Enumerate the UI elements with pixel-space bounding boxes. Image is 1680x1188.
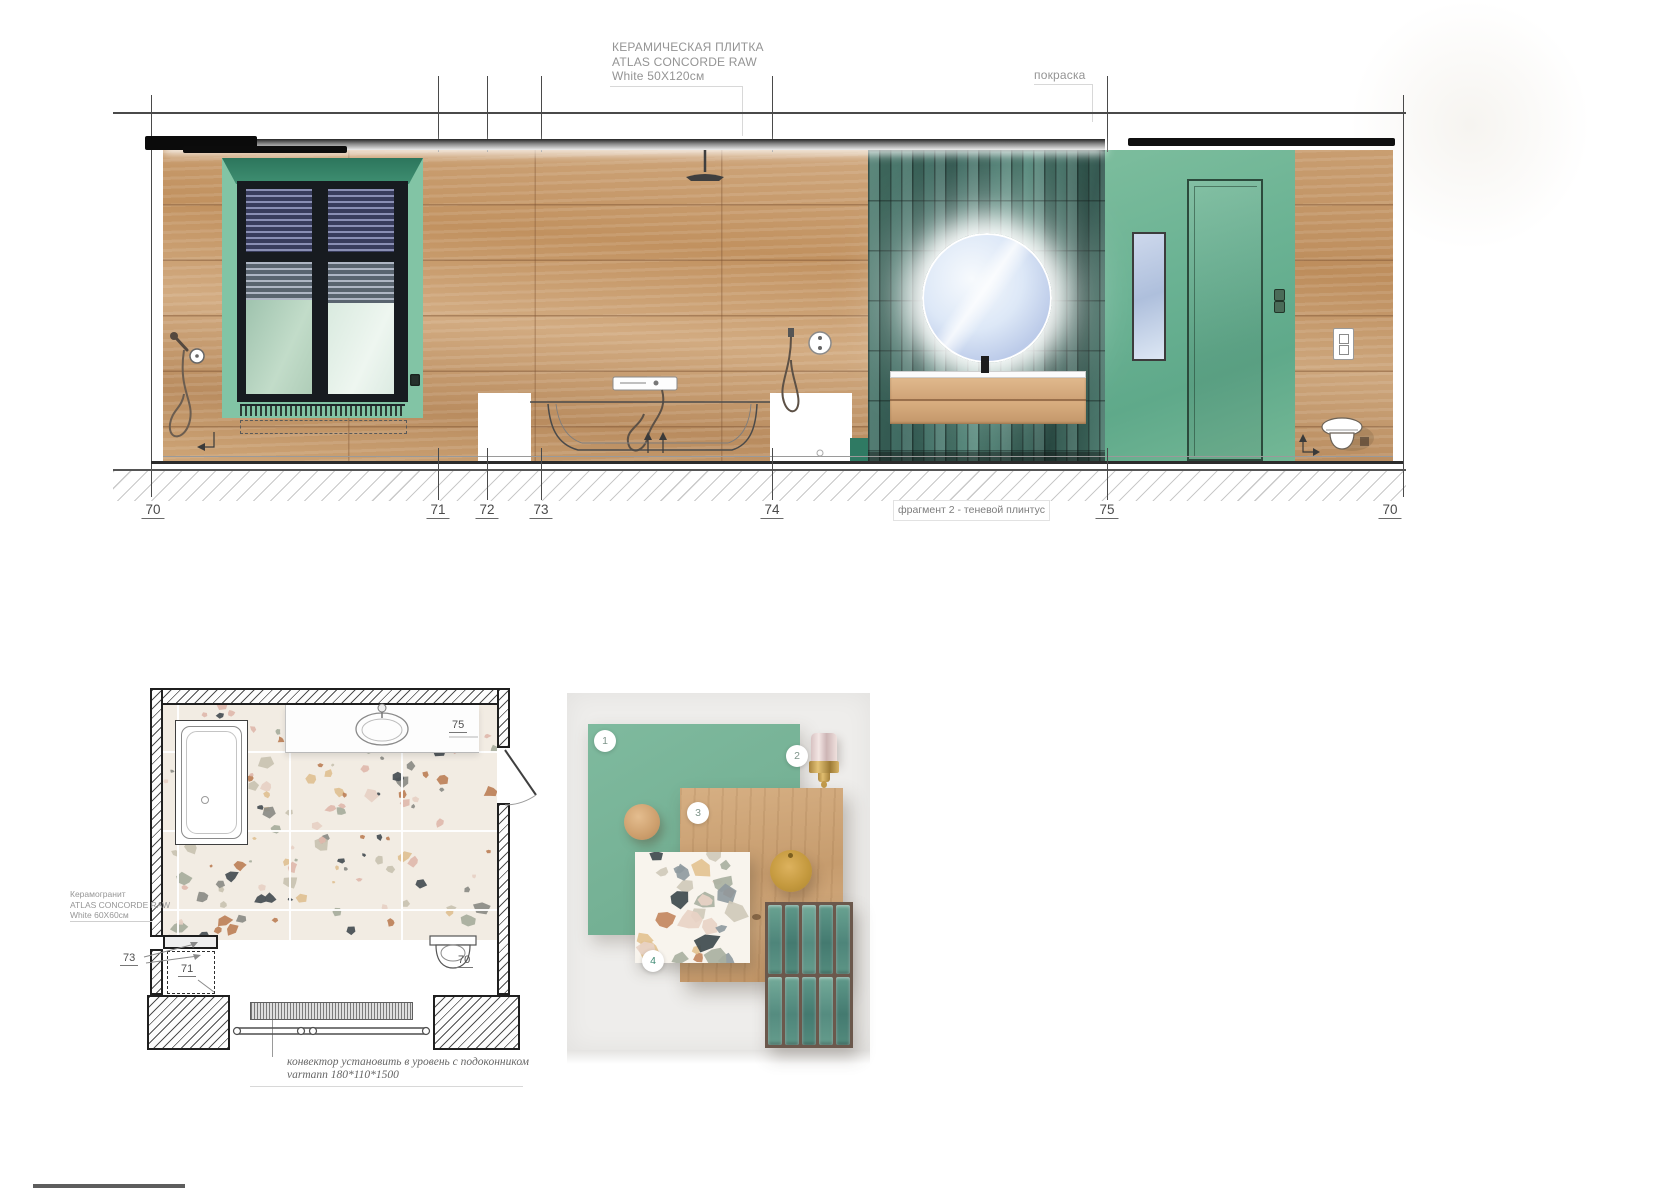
dim-tick [1107, 76, 1108, 152]
plan-wall-left-lower [150, 949, 163, 995]
convector-note-line: конвектор установить в уровень с подокон… [287, 1056, 529, 1069]
elevation-marker: 72 [475, 502, 498, 519]
floor-line-main [151, 461, 1403, 464]
light-switch-icon [1274, 301, 1285, 313]
flush-button [1339, 345, 1349, 355]
dim-tick-bottom [487, 448, 488, 500]
plan-marker-75: 75 [449, 719, 467, 733]
kitkat-tile [819, 905, 833, 974]
sample-badge-2: 2 [786, 745, 808, 767]
floor-finish-annotation: Керамогранит ATLAS CONCORDE RAW White 60… [70, 889, 170, 921]
socket-icon [410, 374, 420, 386]
door-panel-line [1194, 186, 1257, 457]
tile-annotation-leader [610, 86, 742, 87]
sample-brass-disc [770, 850, 812, 892]
moodboard-shadow-fade [567, 1050, 870, 1064]
dimension-line-top [113, 112, 1406, 114]
wood-wall-right [1295, 150, 1393, 463]
convector-note-underline [250, 1086, 523, 1087]
round-mirror [922, 233, 1052, 363]
dim-tick-bottom [438, 448, 439, 500]
plan-marker-70: 70 [455, 954, 473, 968]
window-blind-top-right [328, 189, 394, 252]
elevation-marker: 75 [1095, 502, 1118, 519]
window-glass-left [246, 300, 312, 394]
elevation-marker: 73 [529, 502, 552, 519]
vanity-niche-cutout [770, 393, 852, 463]
title-block-edge [33, 1184, 185, 1188]
plan-wall-bottom-left [147, 995, 230, 1050]
sample-badge-1: 1 [594, 730, 616, 752]
door [1187, 179, 1263, 461]
sample-terrazzo [635, 852, 750, 963]
floor-finish-line: Керамогранит [70, 889, 170, 900]
floor-finish-line: White 60X60см [70, 910, 170, 921]
vanity-groove [890, 399, 1086, 401]
window-blind-top-left [246, 189, 312, 252]
kitkat-tile [785, 977, 799, 1046]
dim-tick-bottom [541, 448, 542, 500]
window-blind-bottom-left [246, 262, 312, 300]
brass-disc-hole [788, 853, 793, 858]
plan-marker-73: 73 [120, 952, 138, 966]
window [222, 158, 423, 418]
convector-note: конвектор установить в уровень с подокон… [287, 1056, 529, 1082]
ground-hatch [113, 471, 1406, 501]
wood-knot [752, 914, 761, 920]
wall-mirror-strip [1132, 232, 1166, 361]
convector-zone-dashed [240, 420, 407, 434]
paint-annotation-leader [1034, 84, 1092, 85]
section-line-right [1403, 95, 1404, 497]
green-plinth-block [850, 438, 868, 463]
ceiling-track-lip [183, 146, 347, 153]
ground-line [113, 469, 1406, 471]
tile-annotation-line: КЕРАМИЧЕСКАЯ ПЛИТКА [612, 40, 764, 55]
kitkat-tile [802, 977, 816, 1046]
sample-wood-knob [624, 804, 660, 840]
kitkat-tile [785, 905, 799, 974]
flush-button [1339, 334, 1349, 344]
plan-wall-right-lower [497, 803, 510, 995]
kitkat-tile [819, 977, 833, 1046]
plan-wall-top [150, 688, 510, 705]
tile-annotation-line: White 50X120см [612, 69, 764, 84]
light-switch-icon [1274, 289, 1285, 301]
tile-annotation-leader [742, 86, 743, 136]
plan-wall-bottom-right [433, 995, 520, 1050]
window-blind-bottom-right [328, 262, 394, 303]
window-sill-grille [240, 404, 405, 416]
kitkat-tile [802, 905, 816, 974]
sample-badge-4: 4 [642, 950, 664, 972]
plan-bathtub [175, 720, 248, 845]
tile-annotation-line: ATLAS CONCORDE RAW [612, 55, 764, 70]
design-sheet: { "elevation": { "tile_label": {"line1":… [0, 0, 1680, 1188]
convector-note-leader [272, 1020, 273, 1057]
elevation-drawing: КЕРАМИЧЕСКАЯ ПЛИТКА ATLAS CONCORDE RAW W… [0, 0, 1680, 560]
kitkat-tile [836, 977, 850, 1046]
vanity-countertop [890, 371, 1086, 378]
elevation-marker: 71 [426, 502, 449, 519]
paint-annotation: покраска [1034, 68, 1086, 83]
fragment-label-box: фрагмент 2 - теневой плинтус [893, 500, 1050, 521]
plan-marker-71: 71 [178, 963, 196, 977]
kitkat-tile [768, 905, 782, 974]
floor-line-inner [163, 456, 1393, 457]
plan-bathtub-basin [186, 731, 237, 834]
convector-note-line: varmann 180*110*1500 [287, 1069, 529, 1082]
floor-finish-line: ATLAS CONCORDE RAW [70, 900, 170, 911]
dim-tick-bottom [772, 448, 773, 500]
sconce-glass [811, 733, 837, 763]
paint-annotation-leader [1092, 84, 1093, 122]
elevation-marker: 74 [760, 502, 783, 519]
ceiling-track-right [1128, 138, 1395, 146]
floor-finish-leader [70, 921, 152, 922]
window-glass-right [328, 303, 394, 394]
kitkat-tile [768, 977, 782, 1046]
bath-niche-cutout [478, 393, 531, 463]
elevation-marker: 70 [1378, 502, 1401, 519]
plan-niche [163, 935, 218, 949]
vanity-cabinet [890, 378, 1086, 424]
kitkat-tile [836, 905, 850, 974]
sample-badge-3: 3 [687, 802, 709, 824]
plan-wall-right-upper [497, 688, 510, 748]
dim-tick-bottom [1107, 448, 1108, 500]
sconce-brass-tip [821, 781, 827, 788]
elevation-marker: 70 [141, 502, 164, 519]
sample-kitkat-tiles [765, 902, 853, 1048]
section-line-left [151, 95, 152, 497]
sconce-brass-ring [809, 761, 839, 773]
tile-annotation: КЕРАМИЧЕСКАЯ ПЛИТКА ATLAS CONCORDE RAW W… [612, 40, 764, 84]
plan-convector [250, 1002, 413, 1020]
flush-plate [1333, 328, 1354, 360]
